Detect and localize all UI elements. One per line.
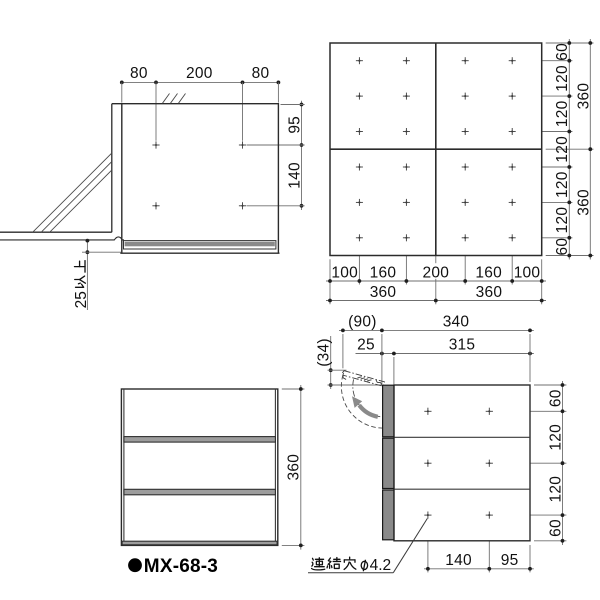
svg-text:360: 360 [575,83,592,110]
svg-text:95: 95 [286,116,303,134]
svg-text:200: 200 [422,265,449,282]
svg-text:360: 360 [370,284,397,301]
svg-text:340: 340 [443,314,470,331]
svg-text:60: 60 [547,519,564,537]
svg-text:MX-68-3: MX-68-3 [144,556,218,577]
svg-text:100: 100 [514,265,541,282]
svg-text:120: 120 [554,207,571,234]
svg-text:200: 200 [186,65,213,82]
svg-text:140: 140 [445,552,472,569]
svg-text:120: 120 [554,65,571,92]
svg-text:360: 360 [286,454,303,481]
svg-text:95: 95 [501,552,519,569]
svg-text:160: 160 [370,265,397,282]
svg-text:120: 120 [554,136,571,163]
svg-text:(34): (34) [316,338,333,367]
svg-text:100: 100 [331,265,358,282]
svg-text:315: 315 [449,337,476,354]
svg-text:360: 360 [575,189,592,216]
svg-text:120: 120 [554,171,571,198]
svg-text:4.2: 4.2 [370,557,392,574]
svg-text:140: 140 [286,162,303,189]
svg-text:60: 60 [554,43,571,61]
svg-text:25: 25 [357,337,375,354]
svg-text:(90): (90) [348,314,377,331]
svg-text:25: 25 [73,291,90,308]
svg-text:60: 60 [547,389,564,407]
svg-text:160: 160 [475,265,502,282]
svg-text:120: 120 [547,476,564,503]
svg-text:80: 80 [252,65,270,82]
svg-text:360: 360 [476,284,503,301]
svg-text:60: 60 [554,238,571,256]
svg-text:80: 80 [130,65,148,82]
svg-text:120: 120 [554,100,571,127]
svg-text:120: 120 [547,424,564,451]
